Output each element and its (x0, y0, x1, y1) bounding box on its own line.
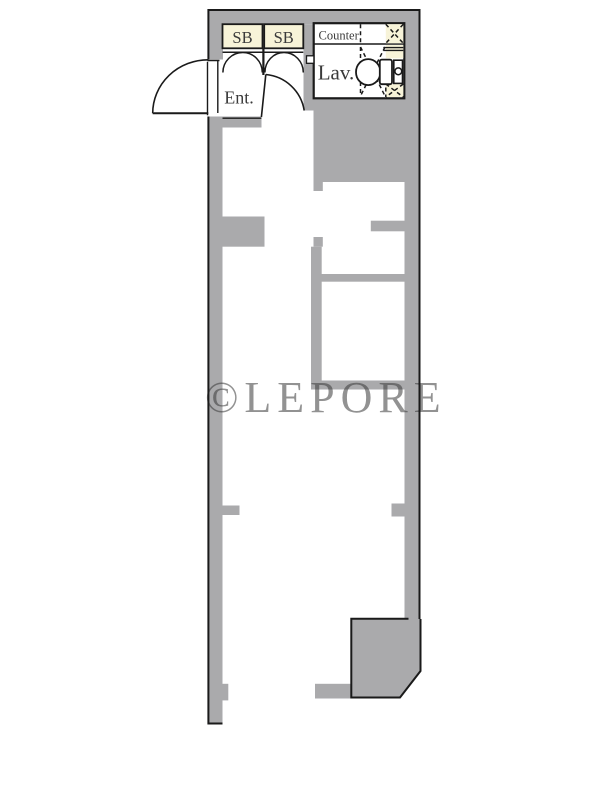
svg-text:Ent.: Ent. (224, 88, 254, 108)
svg-text:Counter: Counter (319, 29, 360, 43)
svg-text:©LEPORE: ©LEPORE (205, 373, 447, 422)
svg-text:Lav.: Lav. (318, 61, 355, 85)
svg-text:SB: SB (232, 28, 252, 47)
svg-text:SB: SB (274, 28, 294, 47)
